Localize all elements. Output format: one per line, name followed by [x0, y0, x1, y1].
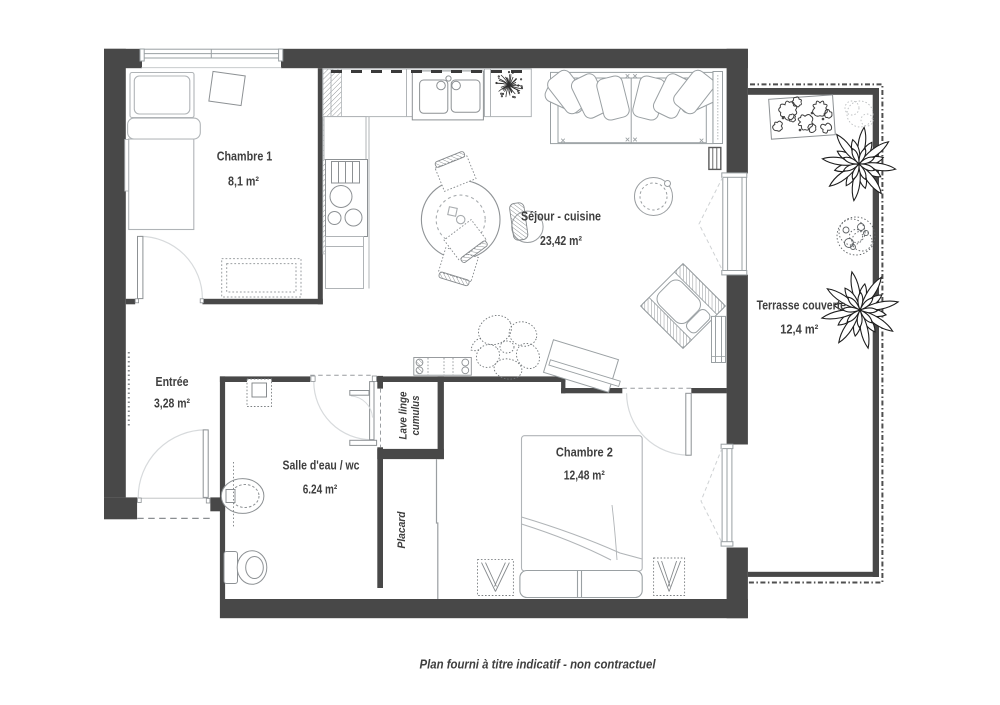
svg-text:Séjour - cuisine: Séjour - cuisine: [521, 209, 601, 224]
svg-text:Lave linge: Lave linge: [398, 392, 410, 440]
svg-text:12,4 m²: 12,4 m²: [780, 323, 818, 337]
svg-text:12,48 m²: 12,48 m²: [564, 469, 605, 483]
svg-text:Terrasse couverte: Terrasse couverte: [757, 298, 846, 313]
svg-text:cumulus: cumulus: [410, 396, 422, 436]
svg-text:Salle d'eau / wc: Salle d'eau / wc: [283, 458, 360, 473]
svg-text:6.24 m²: 6.24 m²: [303, 483, 338, 497]
svg-text:Chambre 1: Chambre 1: [217, 149, 273, 164]
svg-text:23,42 m²: 23,42 m²: [540, 234, 582, 248]
svg-text:8,1 m²: 8,1 m²: [228, 175, 259, 189]
svg-text:Chambre 2: Chambre 2: [556, 445, 613, 460]
svg-text:Entrée: Entrée: [156, 375, 189, 389]
svg-text:Placard: Placard: [396, 511, 408, 548]
svg-text:3,28 m²: 3,28 m²: [154, 397, 190, 411]
svg-text:Plan fourni à titre indicatif: Plan fourni à titre indicatif - non cont…: [420, 658, 656, 672]
